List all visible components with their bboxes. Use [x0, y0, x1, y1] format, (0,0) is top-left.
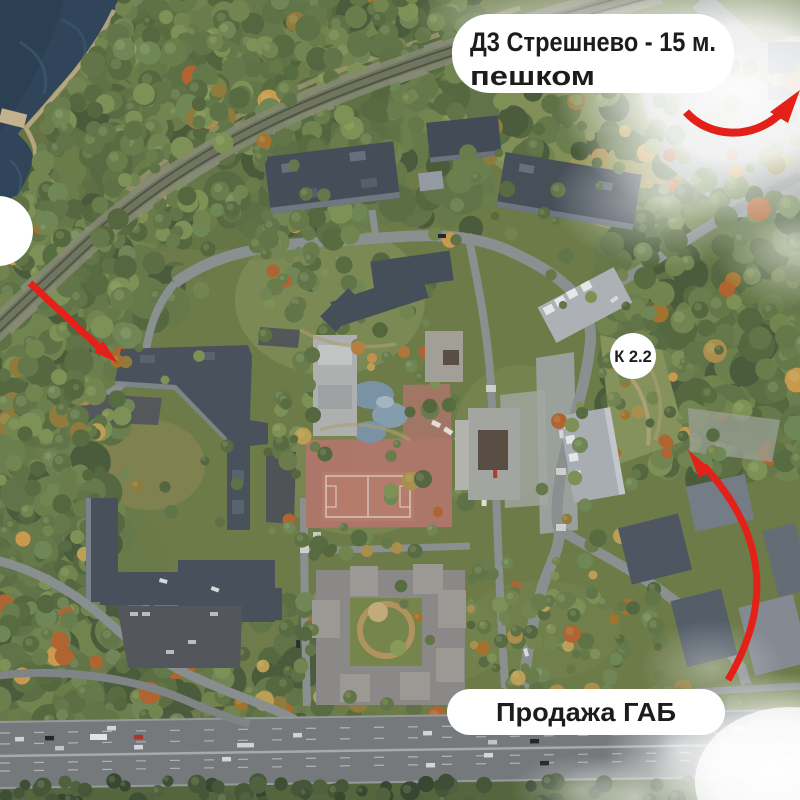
svg-text:Продажа ГАБ: Продажа ГАБ [496, 697, 676, 727]
svg-text:К 2.2: К 2.2 [614, 348, 652, 366]
svg-text:Д3 Стрешнево - 15 м.: Д3 Стрешнево - 15 м. [470, 27, 716, 57]
svg-text:пешком: пешком [470, 61, 595, 91]
